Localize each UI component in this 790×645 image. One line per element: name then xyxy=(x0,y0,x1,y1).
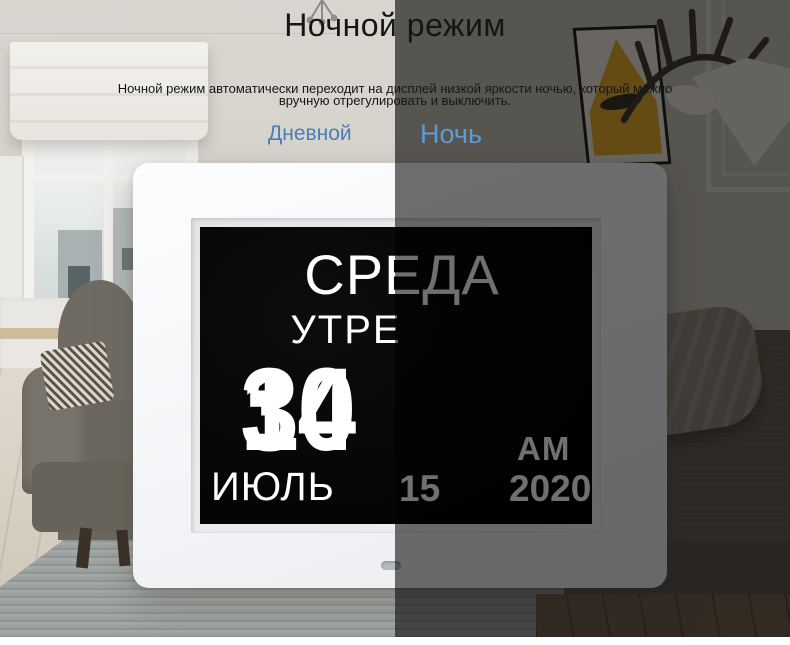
product-photo-canvas: СРЕДА УТРЕ 10:34 AM ИЮЛЬ 15 2020 Ночной … xyxy=(0,0,790,645)
bottom-margin xyxy=(0,637,790,645)
tab-night-mode[interactable]: Ночь xyxy=(420,119,482,150)
night-dim-overlay xyxy=(395,0,790,637)
month-label: ИЮЛЬ xyxy=(211,465,335,510)
armchair-cushion xyxy=(39,341,114,412)
armchair xyxy=(22,280,142,565)
minute-digits: 34 xyxy=(240,351,355,469)
roman-blind xyxy=(10,42,208,140)
ceiling-lamp-icon xyxy=(300,0,344,26)
armchair-seat xyxy=(32,462,142,532)
tab-day-mode[interactable]: Дневной xyxy=(268,122,352,146)
